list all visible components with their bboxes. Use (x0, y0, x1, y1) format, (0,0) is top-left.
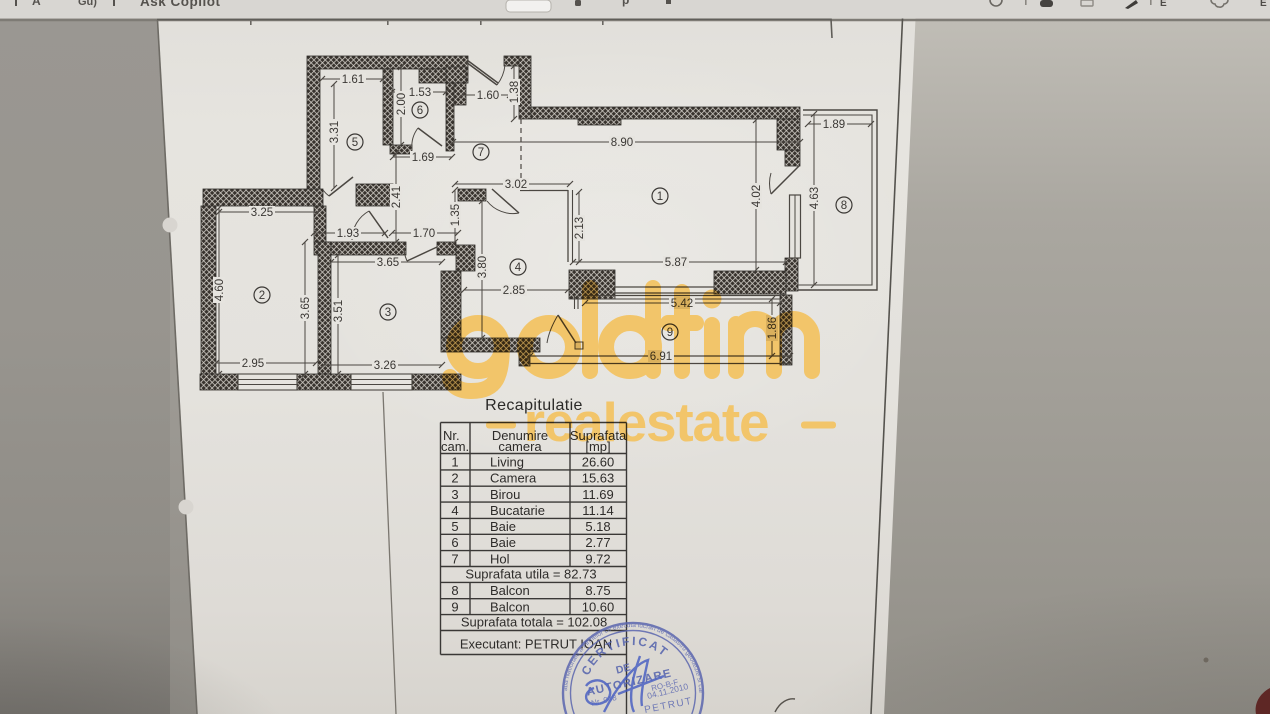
svg-text:Balcon: Balcon (490, 583, 530, 598)
svg-text:9.72: 9.72 (585, 551, 610, 566)
svg-text:4.02: 4.02 (751, 185, 763, 207)
svg-text:8: 8 (841, 200, 847, 212)
svg-text:2: 2 (451, 471, 458, 486)
svg-text:1.69: 1.69 (412, 152, 434, 164)
svg-text:11.69: 11.69 (582, 487, 614, 502)
svg-text:3.25: 3.25 (251, 207, 273, 219)
svg-text:5: 5 (352, 137, 358, 149)
svg-text:Suprafata totala = 102.08: Suprafata totala = 102.08 (461, 615, 607, 630)
svg-text:Hol: Hol (490, 551, 510, 566)
svg-text:Birou: Birou (490, 487, 520, 502)
svg-text:2: 2 (259, 290, 265, 302)
svg-text:realestate: realestate (524, 391, 769, 453)
svg-text:3.51: 3.51 (333, 300, 345, 322)
svg-text:Ask Copilot: Ask Copilot (140, 0, 221, 9)
svg-text:6: 6 (451, 535, 458, 550)
svg-text:8: 8 (451, 583, 458, 598)
svg-text:Camera: Camera (490, 471, 537, 486)
svg-text:1.53: 1.53 (409, 87, 431, 99)
svg-text:Baie: Baie (490, 519, 516, 534)
svg-text:1.38: 1.38 (509, 81, 521, 103)
svg-text:3: 3 (451, 487, 458, 502)
svg-text:Baie: Baie (490, 535, 516, 550)
svg-text:E: E (1260, 0, 1267, 9)
svg-text:10.60: 10.60 (582, 600, 615, 615)
svg-text:3: 3 (385, 307, 391, 319)
svg-text:2.85: 2.85 (503, 285, 525, 297)
svg-text:26.60: 26.60 (582, 454, 615, 469)
svg-text:15.63: 15.63 (582, 471, 615, 486)
svg-text:7: 7 (478, 147, 484, 159)
svg-text:8.90: 8.90 (611, 137, 633, 149)
svg-text:5.18: 5.18 (585, 519, 610, 534)
svg-text:2.13: 2.13 (574, 217, 586, 239)
svg-text:2.41: 2.41 (391, 186, 403, 208)
svg-text:4: 4 (451, 503, 458, 518)
svg-text:Living: Living (490, 454, 524, 469)
svg-text:2.77: 2.77 (585, 535, 610, 550)
svg-text:9: 9 (451, 600, 458, 615)
svg-text:5.87: 5.87 (665, 257, 687, 269)
svg-text:3.65: 3.65 (300, 297, 312, 319)
svg-text:7: 7 (451, 551, 458, 566)
svg-text:4.60: 4.60 (214, 279, 226, 301)
svg-text:3.26: 3.26 (374, 360, 396, 372)
svg-text:3.02: 3.02 (505, 179, 527, 191)
svg-text:11.14: 11.14 (582, 503, 614, 518)
svg-text:2.95: 2.95 (242, 358, 264, 370)
svg-text:1: 1 (451, 454, 458, 469)
svg-text:1: 1 (657, 191, 663, 203)
svg-text:1.93: 1.93 (337, 228, 359, 240)
svg-text:8.75: 8.75 (585, 583, 610, 598)
svg-text:1.70: 1.70 (413, 228, 435, 240)
svg-text:E: E (1160, 0, 1167, 9)
svg-text:cam.: cam. (441, 439, 469, 454)
svg-text:3.65: 3.65 (377, 257, 399, 269)
svg-text:1.35: 1.35 (450, 204, 462, 226)
svg-text:3.31: 3.31 (329, 121, 341, 143)
svg-text:4.63: 4.63 (809, 187, 821, 209)
svg-text:Gu): Gu) (78, 0, 97, 8)
svg-text:5: 5 (451, 519, 458, 534)
svg-text:1.60: 1.60 (477, 90, 499, 102)
svg-text:2.00: 2.00 (396, 93, 408, 115)
svg-text:p: p (622, 0, 629, 7)
svg-text:1.89: 1.89 (823, 119, 845, 131)
svg-text:A: A (32, 0, 41, 8)
svg-text:1.61: 1.61 (342, 74, 364, 86)
svg-text:Balcon: Balcon (490, 600, 530, 615)
svg-text:Suprafata utila = 82.73: Suprafata utila = 82.73 (465, 567, 596, 582)
svg-text:4: 4 (515, 262, 522, 274)
svg-text:3.80: 3.80 (477, 256, 489, 278)
svg-text:Bucatarie: Bucatarie (490, 503, 545, 518)
svg-text:6: 6 (417, 105, 423, 117)
